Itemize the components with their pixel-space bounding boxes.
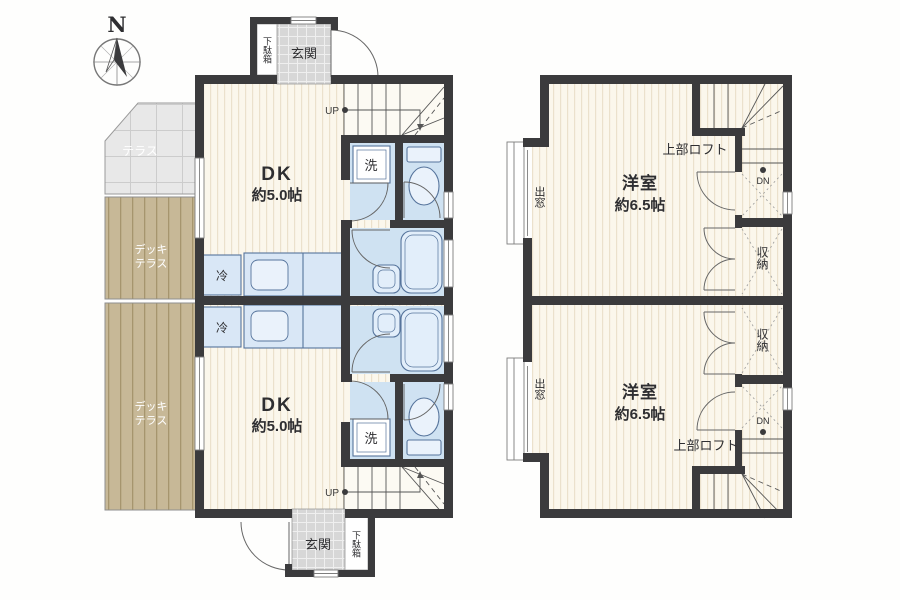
wall-segment — [195, 450, 204, 509]
label-shoe-cabinet-b: 下駄箱 — [351, 531, 361, 559]
wall-segment — [735, 136, 742, 172]
toilet-tank-b — [407, 440, 441, 455]
label-yoshitsu-a: 洋室 — [622, 173, 658, 193]
wall-segment — [331, 75, 453, 84]
compass-north-label: N — [107, 12, 126, 37]
wall-segment — [331, 17, 338, 30]
wall-segment — [195, 509, 292, 518]
label-terrace: テラス — [122, 144, 158, 158]
label-bay-window-b: 出窓 — [533, 377, 546, 400]
bay-window-a — [507, 142, 528, 244]
bathtub-a — [401, 231, 442, 293]
label-entrance-a: 玄関 — [291, 46, 317, 61]
wall-segment — [195, 296, 453, 305]
window — [444, 240, 453, 287]
wall-segment — [783, 410, 792, 509]
label-dk-size-b: 約5.0帖 — [252, 417, 303, 435]
label-shoe-cabinet-a: 下駄箱 — [262, 37, 272, 65]
wall-segment — [395, 143, 403, 220]
wall-segment — [341, 305, 350, 382]
window — [314, 570, 338, 577]
label-loft-b: 上部ロフト — [673, 438, 738, 453]
wall-segment — [341, 374, 352, 382]
wall-segment — [692, 128, 745, 136]
wall-segment — [540, 509, 792, 518]
label-entrance-b: 玄関 — [305, 537, 331, 552]
label-deck-a-2: テラス — [135, 258, 168, 270]
compass: N — [93, 12, 141, 86]
label-loft-a: 上部ロフト — [662, 142, 727, 157]
wall-segment — [341, 220, 350, 296]
window — [783, 192, 792, 214]
wall-segment — [390, 220, 444, 228]
window — [444, 192, 453, 218]
wall-segment — [523, 296, 792, 305]
wall-segment — [341, 143, 350, 180]
wall-segment — [338, 570, 375, 577]
label-dk-b: DK — [261, 395, 292, 416]
label-washer-a: 洗 — [364, 158, 377, 173]
floor-plan-svg: N 玄関 下駄箱 UP テラス DK 約5.0帖 洗 デッキ テラス 冷 冷 デ… — [0, 0, 900, 600]
floor2-plan — [507, 75, 792, 518]
wall-segment — [250, 17, 291, 24]
window — [291, 17, 316, 24]
wall-segment — [540, 453, 549, 509]
wall-segment — [390, 374, 444, 382]
label-yoshitsu-b: 洋室 — [622, 382, 658, 402]
window — [444, 384, 453, 410]
bath-sink-b — [373, 309, 400, 337]
wall-segment — [195, 84, 204, 158]
label-stairs-up-b: UP — [325, 488, 339, 499]
label-stairs-dn-a: DN — [757, 176, 770, 186]
window — [195, 357, 204, 450]
label-washer-b: 洗 — [364, 431, 377, 446]
wall-segment — [735, 375, 783, 384]
wall-segment — [692, 466, 745, 474]
wall-segment — [783, 84, 792, 192]
bathtub-b — [401, 309, 442, 371]
wall-segment — [395, 382, 403, 459]
wall-segment — [735, 218, 783, 227]
wall-segment — [285, 564, 292, 577]
label-fridge-b: 冷 — [216, 321, 228, 335]
label-dk-a: DK — [261, 164, 292, 185]
label-deck-b-1: デッキ — [135, 399, 168, 413]
stairs-floor-a — [344, 84, 444, 135]
label-yoshitsu-size-b: 約6.5帖 — [615, 405, 666, 423]
window — [783, 388, 792, 410]
label-yoshitsu-size-a: 約6.5帖 — [615, 196, 666, 214]
wall-segment — [523, 138, 549, 147]
wall-segment — [345, 509, 453, 518]
wall-segment — [444, 362, 453, 384]
floor-plan-canvas: N 玄関 下駄箱 UP テラス DK 約5.0帖 洗 デッキ テラス 冷 冷 デ… — [0, 0, 900, 600]
wall-segment — [540, 84, 549, 147]
label-closet-b: 収納 — [755, 328, 769, 352]
wall-segment — [250, 24, 257, 75]
label-closet-a: 収納 — [755, 246, 769, 270]
wall-segment — [444, 218, 453, 240]
wall-segment — [341, 422, 350, 459]
label-deck-a-1: デッキ — [135, 242, 168, 256]
label-bay-window-a: 出窓 — [533, 185, 546, 208]
wall-segment — [540, 75, 792, 84]
wall-segment — [341, 135, 453, 143]
label-dk-size-a: 約5.0帖 — [252, 186, 303, 204]
stairs-floor-b — [344, 467, 444, 509]
wall-segment — [368, 517, 375, 570]
wall-segment — [341, 220, 352, 228]
label-deck-b-2: テラス — [135, 415, 168, 427]
window — [444, 315, 453, 362]
label-stairs-up-a: UP — [325, 106, 339, 117]
window — [195, 158, 204, 238]
bay-window-b — [507, 358, 528, 460]
floor1-plan — [105, 17, 453, 577]
label-stairs-dn-b: DN — [757, 416, 770, 426]
label-fridge-a: 冷 — [216, 269, 228, 283]
bath-sink-a — [373, 265, 400, 293]
wall-segment — [341, 459, 453, 467]
wall-segment — [195, 75, 277, 84]
toilet-tank-a — [407, 147, 441, 162]
